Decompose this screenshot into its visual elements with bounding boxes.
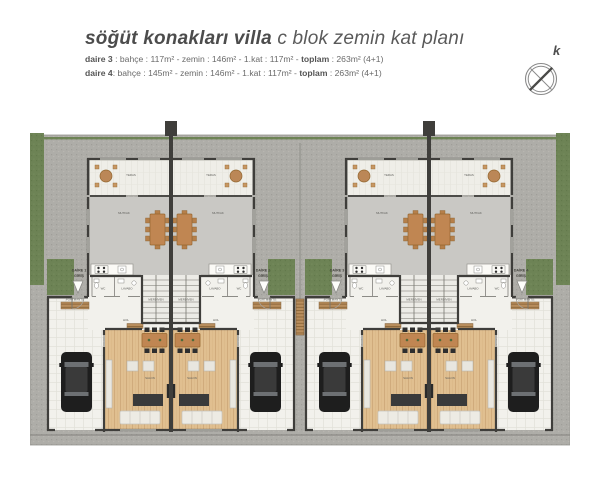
- daire-1-entrance-label: GİRİŞ: [74, 273, 85, 278]
- salon-label: SALON: [445, 376, 455, 380]
- lavabo-label: LAVABO: [209, 287, 221, 291]
- unit-name: daire 4: [85, 68, 113, 78]
- grass-right: [556, 133, 570, 285]
- teras-label: TERAS: [384, 173, 394, 177]
- daire-4-entrance-label: GİRİŞ: [516, 273, 527, 278]
- teras-label: TERAS: [464, 173, 474, 177]
- floor-plan: TERASMUTFAKSALONWCLAVABOMERDİVENPORTMANT…: [30, 113, 570, 448]
- grass-top-edge: [44, 137, 556, 139]
- grass-left: [30, 133, 44, 285]
- mutfak-label: MUTFAK: [212, 211, 224, 215]
- daire-3-entrance-label: GİRİŞ: [332, 273, 343, 278]
- floor-plan-drawing: TERASMUTFAKSALONWCLAVABOMERDİVENPORTMANT…: [30, 113, 570, 448]
- teras-label: TERAS: [206, 173, 216, 177]
- hol-label: HOL: [123, 318, 129, 322]
- portmanto-label: PORTMANTO: [516, 298, 535, 302]
- portmanto-label: PORTMANTO: [324, 298, 343, 302]
- lavabo-label: LAVABO: [379, 287, 391, 291]
- title-project-name: söğüt konakları villa: [85, 28, 272, 49]
- salon-label: SALON: [187, 376, 197, 380]
- daire-2-entrance-label: GİRİŞ: [258, 273, 269, 278]
- page-title: söğüt konakları villa c blok zemin kat p…: [85, 28, 464, 50]
- north-letter: k: [553, 43, 560, 58]
- wc-label: WC: [359, 287, 364, 291]
- lavabo-label: LAVABO: [467, 287, 479, 291]
- wc-label: WC: [101, 287, 106, 291]
- merdiven-label: MERDİVEN: [436, 297, 451, 302]
- lavabo-label: LAVABO: [121, 287, 133, 291]
- salon-label: SALON: [403, 376, 413, 380]
- merdiven-label: MERDİVEN: [406, 297, 421, 302]
- portmanto-label: PORTMANTO: [66, 298, 85, 302]
- wc-label: WC: [237, 287, 242, 291]
- unit-info-line-2: daire 4: bahçe : 145m² - zemin : 146m² -…: [85, 67, 464, 81]
- mutfak-label: MUTFAK: [470, 211, 482, 215]
- daire-4-entrance-label: DAİRE 4: [514, 268, 529, 273]
- mutfak-label: MUTFAK: [376, 211, 388, 215]
- teras-label: TERAS: [126, 173, 136, 177]
- page: söğüt konakları villa c blok zemin kat p…: [0, 0, 600, 497]
- title-plan-name: c blok zemin kat planı: [272, 28, 465, 49]
- hol-label: HOL: [471, 318, 477, 322]
- pergola-fence: [296, 299, 304, 335]
- header: söğüt konakları villa c blok zemin kat p…: [85, 28, 464, 81]
- daire-3-entrance-label: DAİRE 3: [330, 268, 345, 273]
- hol-label: HOL: [213, 318, 219, 322]
- wc-label: WC: [495, 287, 500, 291]
- mutfak-label: MUTFAK: [118, 211, 130, 215]
- compass: k: [520, 55, 566, 101]
- daire-1-entrance-label: DAİRE 1: [72, 268, 87, 273]
- hol-label: HOL: [381, 318, 387, 322]
- merdiven-label: MERDİVEN: [148, 297, 163, 302]
- unit-name: daire 3: [85, 54, 113, 64]
- unit-info-line-1: daire 3 : bahçe : 117m² - zemin : 146m² …: [85, 53, 464, 67]
- compass-icon: [520, 55, 566, 101]
- daire-2-entrance-label: DAİRE 2: [256, 268, 271, 273]
- portmanto-label: PORTMANTO: [258, 298, 277, 302]
- merdiven-label: MERDİVEN: [178, 297, 193, 302]
- salon-label: SALON: [145, 376, 155, 380]
